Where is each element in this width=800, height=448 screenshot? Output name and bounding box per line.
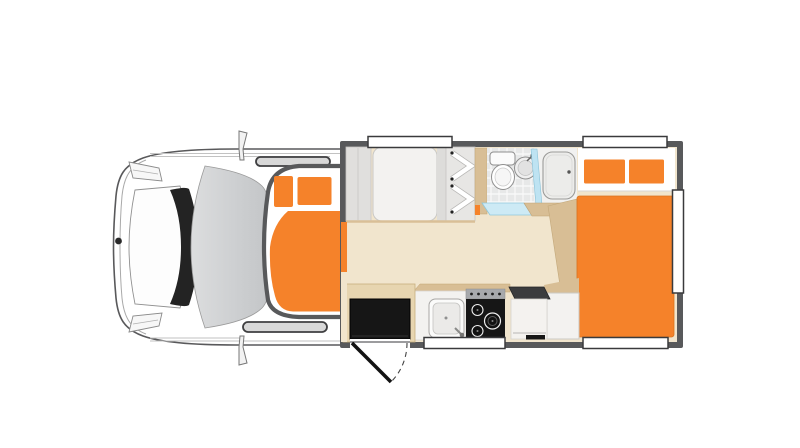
rear-bed-mattress <box>577 196 674 337</box>
front-bed-right-strip <box>437 147 446 221</box>
window-bottom-rear <box>583 338 668 349</box>
luton-opening-cream-sliver <box>341 272 347 342</box>
shower-tray-step <box>482 203 532 215</box>
kitchen <box>413 284 550 340</box>
overcab-luton-bed <box>264 166 341 317</box>
rear-pillow-left <box>584 160 625 184</box>
floorplan-canvas <box>0 0 800 448</box>
window-rear-wall <box>673 190 684 293</box>
kitchen-sink <box>429 299 464 338</box>
kitchen-cabinet <box>511 299 547 340</box>
entry-step <box>350 299 410 339</box>
front-badge <box>115 238 122 245</box>
overcab-mattress <box>270 211 341 312</box>
entry-door-swing <box>350 339 410 382</box>
cab-side-window-bottom <box>243 322 327 332</box>
counter-vent <box>509 287 550 299</box>
cabinet-kick-vent <box>526 335 545 340</box>
gas-cooktop <box>466 289 505 339</box>
entry-area <box>343 284 415 342</box>
rear-pillow-right <box>629 160 664 184</box>
windshield <box>191 166 273 328</box>
front-seating-bed-block <box>346 147 487 222</box>
motorhome-floorplan <box>0 0 800 448</box>
overcab-pillow-right <box>298 177 332 205</box>
toilet <box>490 152 515 190</box>
divider-orange-accent <box>475 205 480 215</box>
front-bed-cushion <box>373 147 437 221</box>
foot-cabinet <box>547 293 579 339</box>
luton-opening-orange-sliver <box>341 222 347 272</box>
shower-cubicle-door <box>543 152 575 199</box>
window-bottom-kitchen <box>424 338 505 349</box>
window-top-rear <box>583 137 667 148</box>
window-top-front <box>368 137 452 148</box>
overcab-pillow-left <box>274 176 293 207</box>
